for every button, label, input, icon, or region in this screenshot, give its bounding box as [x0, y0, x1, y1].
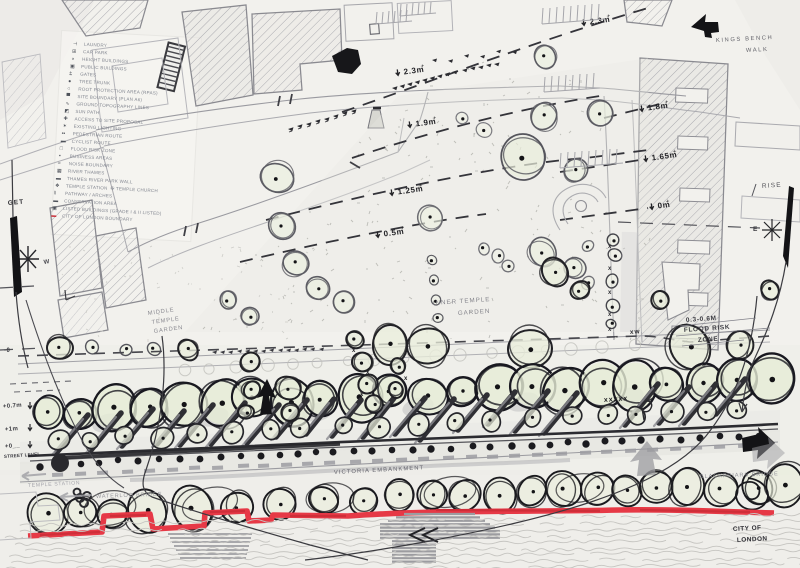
svg-text:●: ● [68, 78, 71, 84]
svg-text:❖: ❖ [55, 183, 60, 189]
svg-text:▬: ▬ [51, 213, 56, 219]
svg-text:▣: ▣ [70, 64, 75, 70]
svg-text:▬: ▬ [61, 138, 66, 144]
svg-text:⩲: ⩲ [69, 71, 72, 77]
svg-text:◑: ◑ [71, 56, 74, 62]
svg-text:▬: ▬ [56, 175, 61, 181]
svg-text:◩: ◩ [64, 108, 69, 114]
svg-text:xw: xw [630, 328, 641, 336]
svg-text:□: □ [60, 146, 63, 152]
svg-text:GET: GET [8, 199, 25, 207]
svg-text:▦: ▦ [57, 168, 62, 174]
svg-text:‖: ‖ [54, 190, 56, 196]
svg-text:✚: ✚ [63, 116, 68, 122]
svg-text:▬: ▬ [53, 198, 58, 204]
svg-text:E: E [753, 226, 758, 233]
svg-text:⊣: ⊣ [73, 41, 78, 47]
svg-text:▪▪: ▪▪ [61, 131, 65, 137]
svg-text:▣: ▣ [52, 205, 57, 211]
svg-text:⊞: ⊞ [72, 49, 77, 55]
svg-text:-0: -0 [4, 348, 10, 354]
svg-text:○: ○ [67, 86, 70, 92]
svg-text:RISE: RISE [762, 182, 782, 190]
svg-text:WALK: WALK [746, 47, 769, 54]
svg-text:✶: ✶ [62, 123, 67, 129]
svg-text:CITY OF: CITY OF [733, 525, 762, 533]
svg-text:+1m: +1m [5, 426, 19, 433]
svg-text:+0__: +0__ [5, 443, 21, 450]
svg-text:∿: ∿ [65, 101, 70, 107]
svg-text:GATES: GATES [80, 72, 96, 78]
